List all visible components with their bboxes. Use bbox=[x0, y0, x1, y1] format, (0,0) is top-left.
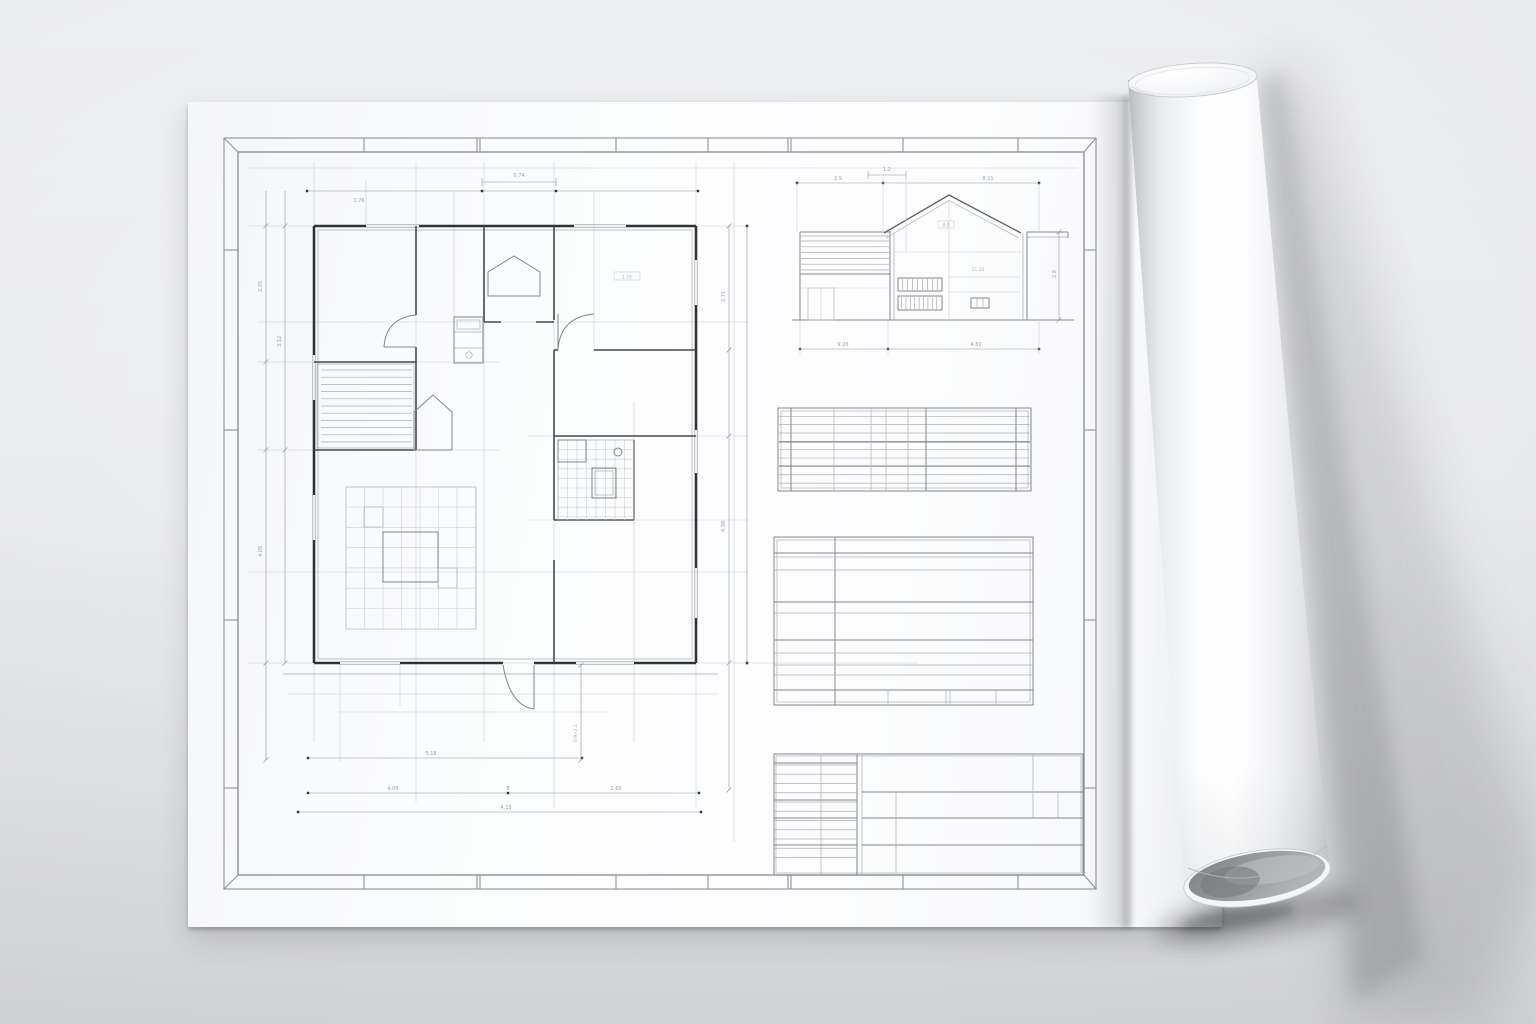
roll-shadow-on-sheet bbox=[1090, 96, 1132, 928]
scene: 1 25 0.74 1.76 bbox=[0, 0, 1536, 1024]
paper-roll-layer bbox=[0, 0, 1536, 1024]
